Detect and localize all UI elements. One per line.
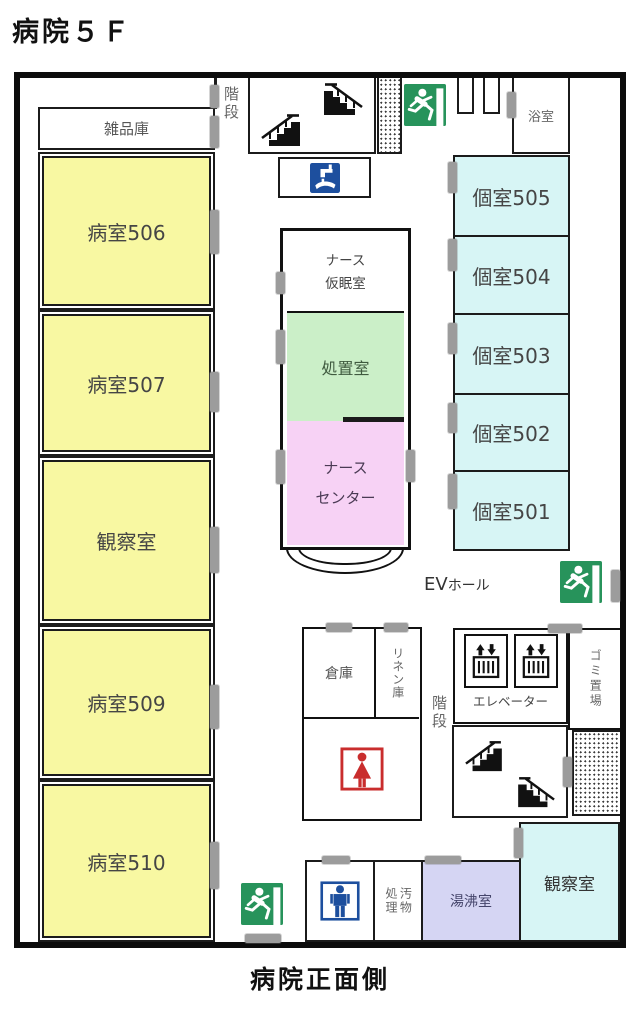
dotted-area-garbage bbox=[572, 730, 620, 816]
room-ward509: 病室509 bbox=[38, 625, 215, 780]
room-ward506-label: 病室506 bbox=[87, 217, 165, 246]
front-side-label: 病院正面側 bbox=[0, 960, 640, 996]
door bbox=[448, 239, 457, 271]
elevator-cabin bbox=[514, 634, 558, 688]
handwash-icon bbox=[310, 163, 340, 193]
room-storage-label: 雑品庫 bbox=[104, 118, 149, 139]
room-505: 個室505 bbox=[453, 155, 570, 237]
door bbox=[210, 372, 219, 412]
door bbox=[448, 162, 457, 193]
room-504: 個室504 bbox=[453, 235, 570, 315]
ev-hall-label: EVホール bbox=[424, 574, 490, 595]
room-ward509-label: 病室509 bbox=[87, 688, 165, 717]
room-observation: 観察室 bbox=[38, 456, 215, 625]
exit-icon-ev-hall bbox=[560, 561, 602, 603]
door bbox=[548, 624, 582, 633]
room-ward510-label: 病室510 bbox=[87, 847, 165, 876]
room-linen-label: リネン庫 bbox=[390, 647, 404, 699]
door bbox=[276, 450, 285, 484]
elevator-cabin bbox=[464, 634, 508, 688]
stairs-down-icon bbox=[322, 81, 368, 117]
door bbox=[276, 330, 285, 364]
room-storage: 雑品庫 bbox=[38, 107, 215, 150]
room-501: 個室501 bbox=[453, 470, 570, 551]
door bbox=[406, 450, 415, 482]
door bbox=[563, 757, 572, 787]
exit-icon-top bbox=[404, 84, 446, 126]
room-503-label: 個室503 bbox=[472, 340, 550, 369]
room-garbage-label: ゴミ置場 bbox=[588, 649, 602, 709]
bath-stall bbox=[457, 78, 474, 114]
bath-stall bbox=[483, 78, 500, 114]
door bbox=[514, 828, 523, 858]
room-waste-label: 汚物 処理 bbox=[384, 887, 413, 915]
elevator-label: エレベーター bbox=[473, 691, 548, 710]
door bbox=[210, 116, 219, 148]
room-501-label: 個室501 bbox=[472, 496, 550, 525]
room-504-label: 個室504 bbox=[472, 261, 550, 290]
room-ward507-label: 病室507 bbox=[87, 369, 165, 398]
floor-plan: 雑品庫 病室506 病室507 観察室 病室509 病室510 階段 bbox=[14, 72, 626, 948]
room-bath-label: 浴室 bbox=[528, 106, 554, 125]
door bbox=[276, 272, 285, 294]
room-observation-label: 観察室 bbox=[97, 526, 157, 555]
elevator-icon bbox=[471, 642, 501, 680]
room-503: 個室503 bbox=[453, 313, 570, 395]
door bbox=[507, 92, 516, 118]
room-womens-toilet bbox=[304, 719, 419, 818]
exit-icon-bottom bbox=[241, 883, 283, 925]
stairs-up-icon bbox=[256, 112, 302, 148]
room-nurse-station-label: ナース センター bbox=[315, 453, 375, 513]
stairs-down-icon bbox=[516, 775, 560, 809]
room-nurse-station: ナース センター bbox=[287, 421, 404, 545]
room-ward506: 病室506 bbox=[38, 152, 215, 310]
room-treatment: 処置室 bbox=[287, 311, 404, 421]
nurse-block: ナース 仮眠室 処置室 ナース センター bbox=[280, 228, 411, 550]
room-mens-toilet bbox=[305, 860, 375, 942]
room-hot-water: 湯沸室 bbox=[421, 860, 521, 942]
room-treatment-label: 処置室 bbox=[321, 355, 369, 379]
mens-toilet-icon bbox=[320, 881, 360, 921]
door bbox=[210, 685, 219, 729]
door bbox=[210, 85, 219, 108]
room-ward507: 病室507 bbox=[38, 310, 215, 456]
room-nurse-rest: ナース 仮眠室 bbox=[287, 235, 404, 311]
room-ward510: 病室510 bbox=[38, 780, 215, 942]
door bbox=[210, 527, 219, 573]
room-505-label: 個室505 bbox=[472, 182, 550, 211]
ev-hall-label-jp: ホール bbox=[448, 578, 490, 594]
wall-partial bbox=[343, 417, 404, 422]
room-linen: リネン庫 bbox=[376, 629, 419, 719]
stairs-bottom-label: 階段 bbox=[430, 695, 448, 731]
room-warehouse-label: 倉庫 bbox=[325, 663, 353, 683]
door bbox=[322, 856, 350, 864]
room-bath: 浴室 bbox=[512, 78, 570, 154]
womens-toilet-icon bbox=[340, 747, 384, 791]
elevator-room: エレベーター bbox=[453, 628, 568, 724]
door bbox=[210, 842, 219, 889]
stairs-top-label: 階段 bbox=[222, 86, 240, 122]
door bbox=[425, 856, 461, 864]
stairs-up-icon bbox=[460, 739, 504, 773]
door bbox=[245, 934, 281, 943]
door bbox=[448, 403, 457, 433]
door bbox=[210, 210, 219, 254]
handwash-station bbox=[278, 157, 371, 198]
elevator-icon bbox=[521, 642, 551, 680]
room-502-label: 個室502 bbox=[472, 418, 550, 447]
room-warehouse: 倉庫 bbox=[304, 629, 376, 719]
room-observation2-label: 観察室 bbox=[544, 870, 595, 895]
floor-title: 病院５Ｆ bbox=[12, 10, 132, 49]
room-502: 個室502 bbox=[453, 393, 570, 472]
room-nurse-rest-label: ナース 仮眠室 bbox=[325, 250, 366, 296]
stairs-room-bottom bbox=[452, 725, 568, 818]
room-hot-water-label: 湯沸室 bbox=[450, 891, 492, 911]
door bbox=[326, 623, 352, 632]
dotted-area-top bbox=[377, 78, 402, 154]
stairs-room-top bbox=[248, 78, 376, 154]
room-observation2: 観察室 bbox=[519, 822, 620, 942]
door bbox=[448, 323, 457, 354]
door bbox=[448, 474, 457, 509]
room-waste: 汚物 処理 bbox=[373, 860, 423, 942]
service-block: 倉庫 リネン庫 bbox=[302, 627, 422, 821]
room-garbage: ゴミ置場 bbox=[568, 628, 620, 730]
door bbox=[384, 623, 408, 632]
ev-hall-label-en: EV bbox=[424, 574, 448, 595]
door bbox=[611, 570, 620, 602]
